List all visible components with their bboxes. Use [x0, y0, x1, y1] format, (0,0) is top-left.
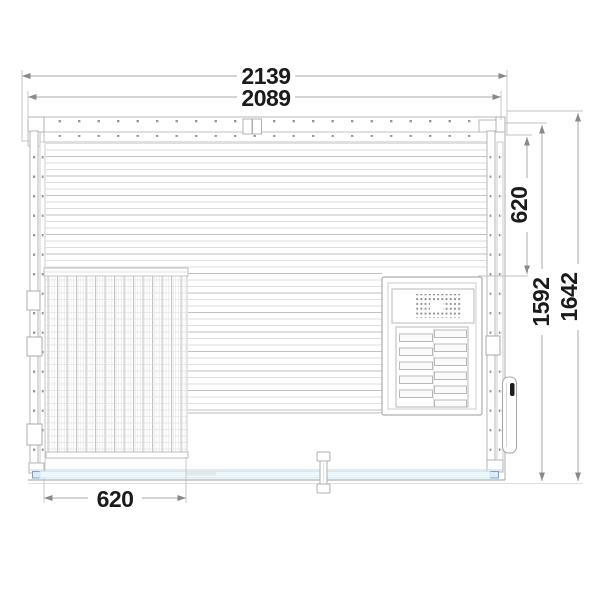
left-wall-post: [27, 131, 45, 478]
screw-dots-row-outer: [50, 120, 495, 122]
hinge-left-middle: [27, 337, 42, 356]
screw-dots-col-right-inner: [499, 150, 501, 458]
dim-depth-interior-label: 1592: [528, 277, 554, 326]
bracket-right: [486, 336, 500, 355]
screw-dots-col-right-outer: [490, 150, 492, 458]
louver-slat: [400, 334, 433, 342]
louver-slat: [435, 386, 467, 394]
dimension-bench-width: 620: [44, 457, 186, 512]
top-plate-outer: [28, 117, 505, 132]
bench-slats-texture: [45, 276, 187, 452]
bench: [44, 268, 188, 458]
hinge-left-lower: [27, 424, 42, 445]
glass-band: [40, 472, 490, 479]
louver-slat: [400, 348, 433, 356]
glass-fitting-right: [490, 472, 499, 479]
dim-bench-width-label: 620: [97, 486, 134, 512]
paneling-upper: [46, 142, 488, 272]
glass-watermark: [186, 472, 216, 476]
louver-slat: [400, 376, 433, 384]
plate-joint-right: [253, 119, 262, 134]
screw-dots-col-left-inner: [41, 150, 43, 458]
corner-block-right: [479, 120, 498, 132]
back-wall-top-plates: [28, 117, 505, 146]
louver-slat: [435, 400, 467, 407]
heater: [382, 277, 482, 415]
louver-slat: [435, 358, 467, 366]
side-door-handle: [503, 377, 517, 453]
hinge-left-upper: [27, 291, 40, 310]
corner-block-left: [28, 117, 44, 132]
paneling-lower: [188, 272, 382, 413]
louver-slat: [400, 390, 433, 398]
sauna-technical-drawing-page: 2139 2089 620 1592 1642: [0, 0, 600, 600]
handle-latch: [510, 383, 515, 396]
sauna-technical-drawing: 2139 2089 620 1592 1642: [0, 0, 600, 600]
front-handle-bottom-cap: [317, 484, 330, 493]
dim-width-interior-label: 2089: [241, 85, 290, 111]
dim-depth-overall-label: 1642: [556, 272, 582, 321]
screw-dots-row-inner: [50, 135, 485, 137]
corner-post-right: [496, 117, 505, 132]
louver-slat: [435, 372, 467, 380]
louver-slat: [435, 330, 467, 338]
dimension-width-interior: 2089: [28, 85, 501, 120]
heater-perforation-gap: [430, 301, 443, 310]
plate-joint-left: [243, 119, 252, 134]
top-plate-inner: [44, 132, 488, 142]
bench-bottom-rail: [46, 452, 188, 458]
front-handle-top-cap: [317, 452, 330, 461]
louver-slat: [435, 344, 467, 352]
dim-heater-offset-label: 620: [506, 187, 532, 224]
louver-slat: [400, 362, 433, 370]
